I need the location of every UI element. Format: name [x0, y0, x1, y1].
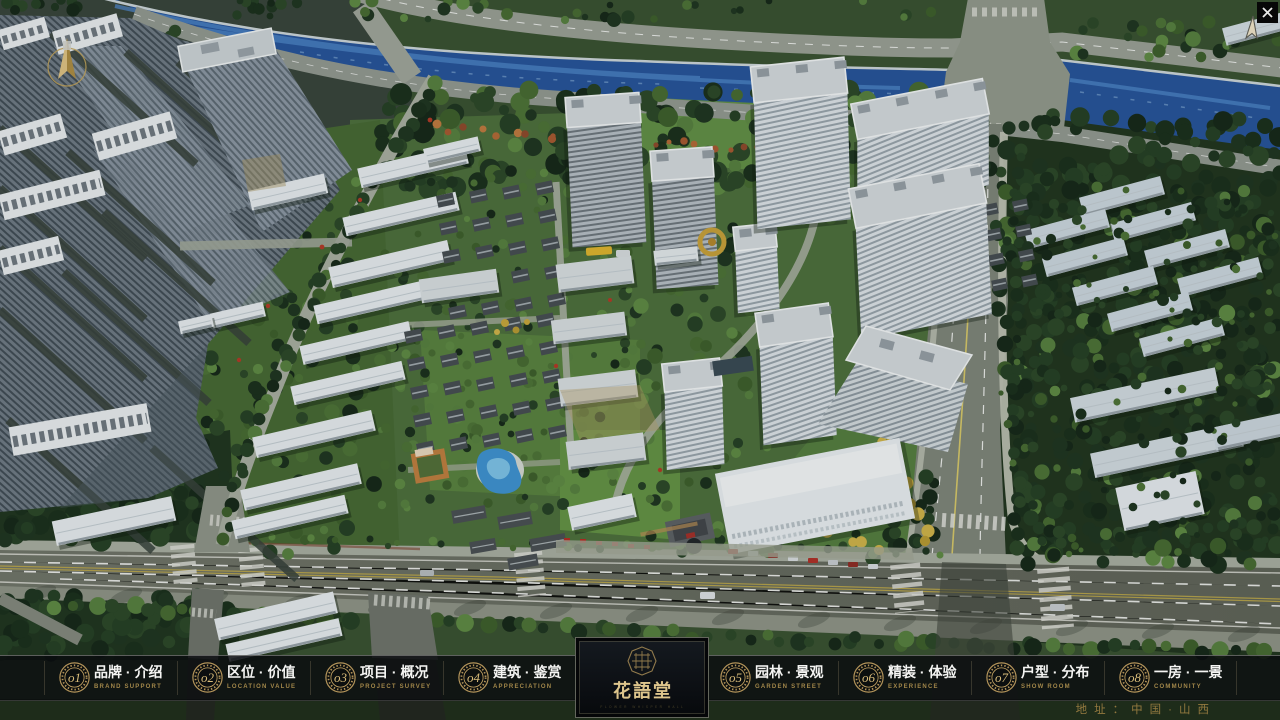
- svg-text:o3: o3: [334, 670, 348, 685]
- svg-text:o7: o7: [995, 670, 1009, 685]
- svg-text:o4: o4: [467, 670, 481, 685]
- svg-text:o5: o5: [729, 670, 743, 685]
- svg-text:o1: o1: [68, 670, 81, 685]
- svg-text:o6: o6: [862, 670, 876, 685]
- svg-text:o8: o8: [1128, 670, 1142, 685]
- svg-text:o2: o2: [201, 670, 215, 685]
